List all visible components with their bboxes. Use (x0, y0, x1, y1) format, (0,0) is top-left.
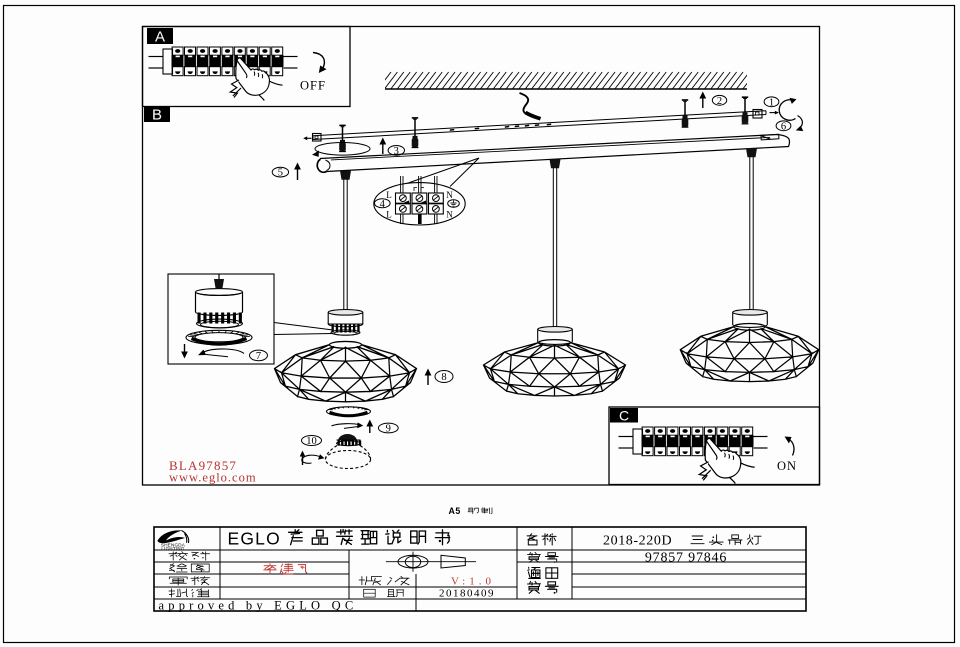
svg-text:10: 10 (306, 436, 317, 447)
svg-text:LIGHTING: LIGHTING (161, 546, 184, 551)
svg-text:ON: ON (777, 459, 797, 473)
svg-text:A5: A5 (449, 506, 461, 516)
svg-text:V:1.0: V:1.0 (451, 576, 495, 588)
svg-text:approved by EGLO QC: approved by EGLO QC (159, 599, 358, 613)
svg-text:3: 3 (394, 146, 399, 157)
svg-text:1: 1 (769, 97, 774, 108)
svg-text:C: C (619, 408, 629, 424)
svg-text:A: A (155, 29, 165, 46)
svg-text:OFF: OFF (300, 79, 326, 93)
svg-text:www.eglo.com: www.eglo.com (169, 471, 257, 485)
svg-text:6: 6 (781, 121, 786, 132)
svg-text:5: 5 (278, 168, 283, 179)
svg-text:9: 9 (386, 424, 391, 435)
svg-text:8: 8 (441, 372, 446, 383)
svg-text:7: 7 (256, 351, 261, 362)
svg-text:20180409: 20180409 (439, 588, 495, 600)
svg-text:2: 2 (717, 96, 722, 107)
svg-text:N: N (446, 210, 453, 220)
svg-text:L: L (386, 190, 392, 200)
svg-text:EGLO: EGLO (228, 529, 281, 549)
svg-text:97857 97846: 97857 97846 (645, 551, 727, 566)
svg-text:B: B (152, 107, 162, 124)
svg-text:L: L (386, 210, 392, 220)
svg-text:4: 4 (380, 199, 386, 210)
svg-text:N: N (446, 190, 453, 200)
svg-text:2018-220D: 2018-220D (603, 533, 672, 548)
